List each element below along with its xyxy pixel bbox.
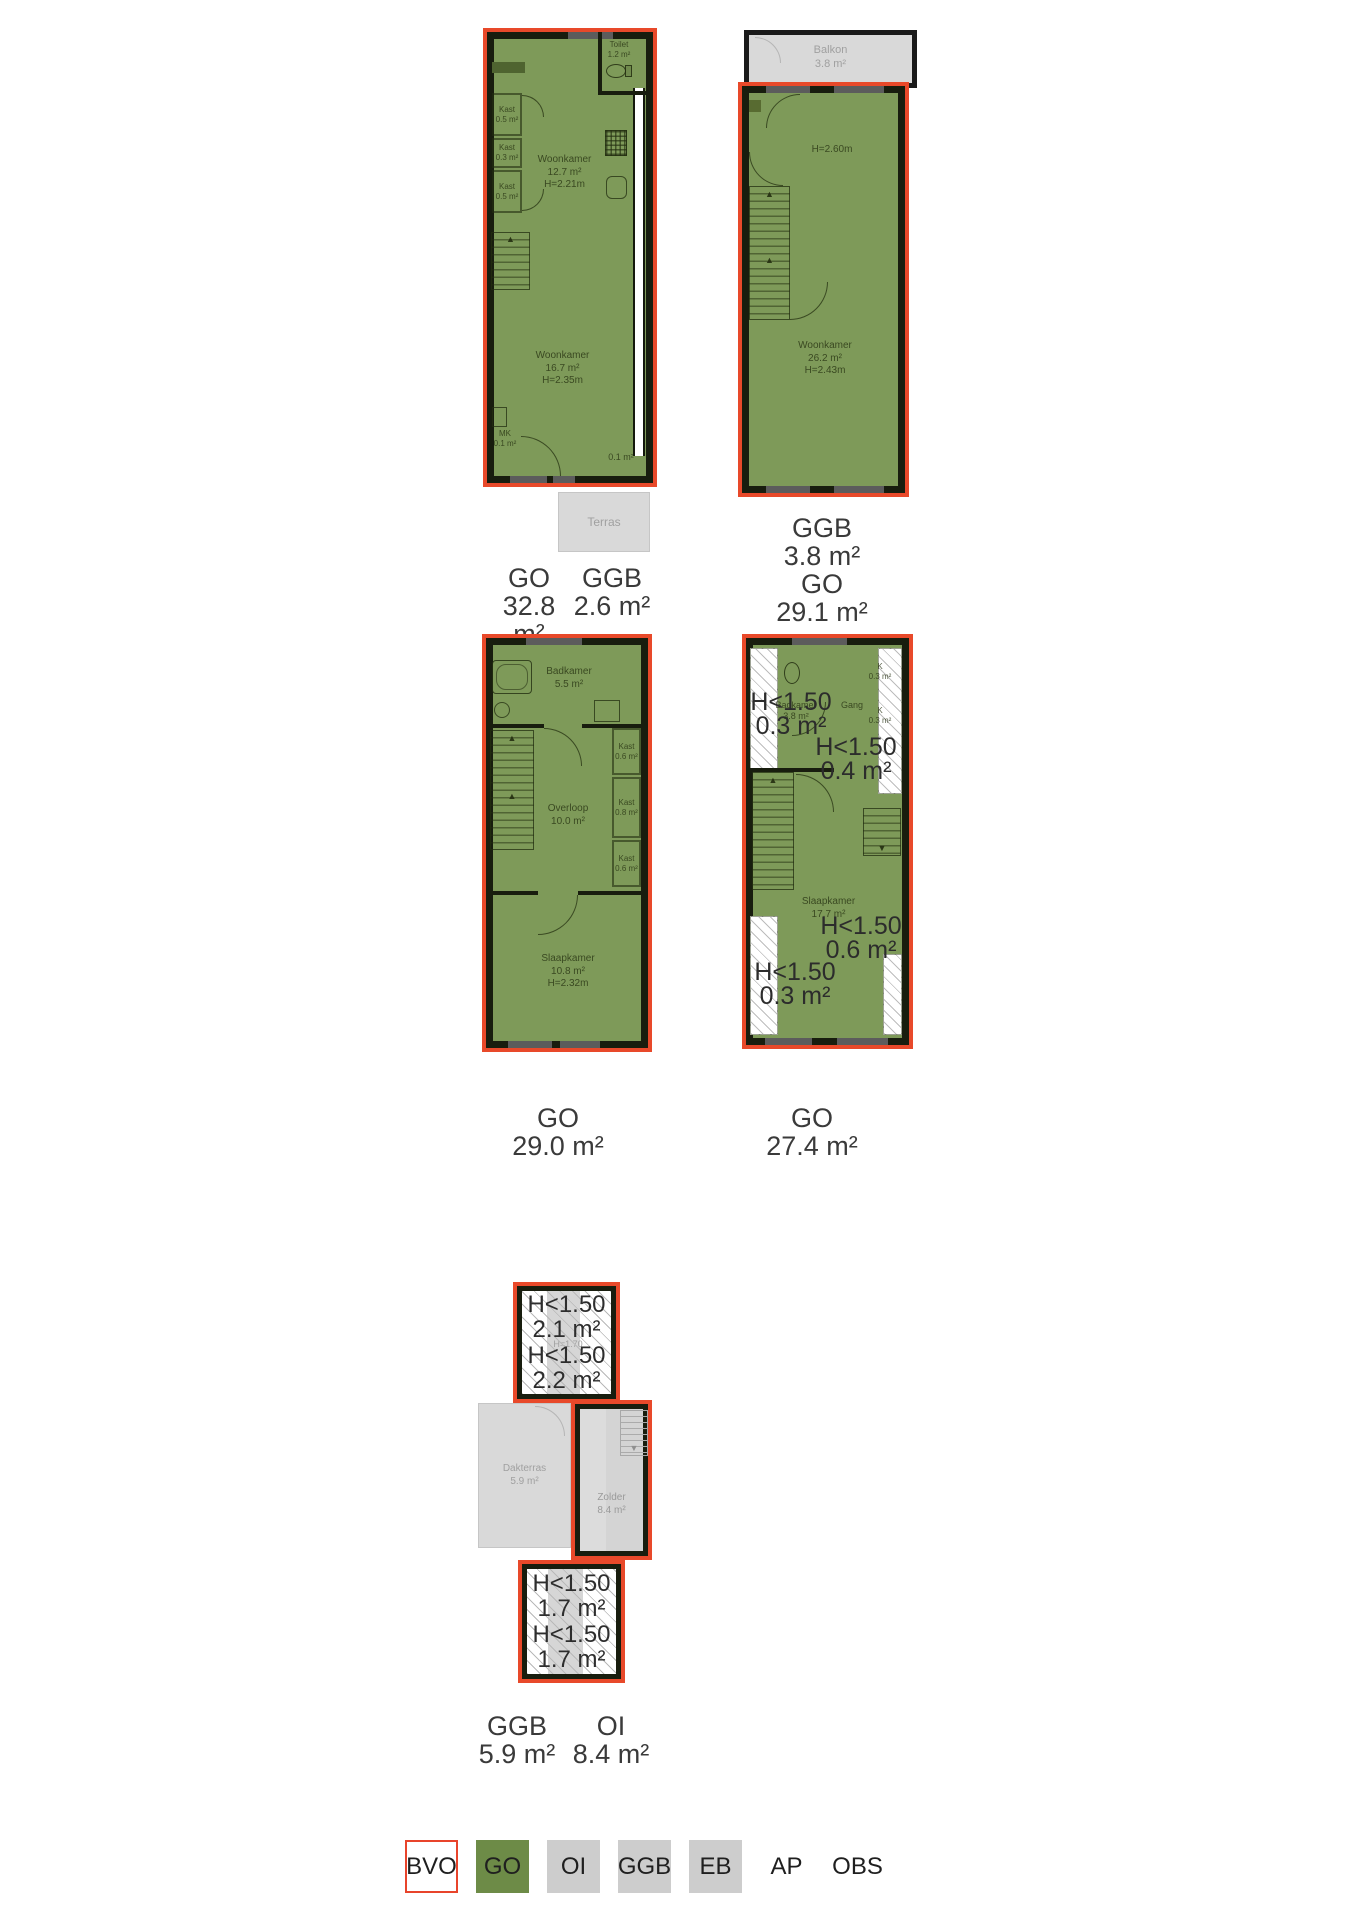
attic-bottom-walls: H<1.50 1.7 m² H<1.50 1.7 m² [522, 1564, 621, 1679]
stairs-up-arrow-icon: ▲ [506, 234, 515, 244]
interior-wall [578, 891, 648, 895]
room-label-kast2: Kast 0.3 m² [496, 143, 519, 163]
room-label-woonkamer-back: Woonkamer 16.7 m² H=2.35m [515, 350, 610, 388]
room-name: Overloop [528, 803, 608, 816]
low-height-labels: H<1.50 1.7 m² H<1.50 1.7 m² [527, 1569, 616, 1674]
counter [492, 62, 525, 73]
room-height: H=2.21m [517, 179, 612, 192]
zone-area: 0.4 m² [810, 759, 902, 783]
zone-area: 2.2 m² [532, 1368, 600, 1394]
measurement-oi: OI 8.4 m² [567, 1712, 655, 1768]
legend-item-ggb: GGB [618, 1840, 671, 1893]
room-name: Toilet [597, 40, 641, 50]
measurement-go: GO 29.0 m² [508, 1104, 608, 1160]
staircase-upper: ▼ [863, 808, 901, 856]
room-area: 16.7 m² [515, 363, 610, 376]
plan-attic-zolder-section: ▼ Zolder 8.4 m² [571, 1400, 652, 1560]
room-label-kast3: Kast 0.6 m² [615, 854, 638, 874]
measurement-code: GGB [572, 564, 652, 592]
toilet-wall [598, 91, 653, 95]
measurement-code: GGB [772, 514, 872, 542]
closet-kast-3: Kast 0.6 m² [612, 840, 641, 887]
low-height-label-4: H<1.50 0.3 m² [752, 960, 838, 1008]
room-area: 3.8 m² [749, 57, 912, 71]
low-height-label-1: H<1.50 0.3 m² [748, 690, 834, 738]
room-label-kast1: Kast 0.5 m² [496, 105, 519, 125]
low-height-hatch [883, 954, 902, 1035]
room-area: 0.5 m² [496, 192, 519, 202]
measurement-ggb: GGB 2.6 m² [572, 564, 652, 620]
measurement-value: 27.4 m² [762, 1132, 862, 1160]
vent-grille-icon [605, 130, 627, 156]
room-name: Dakterras [479, 1462, 570, 1475]
room-area: 0.1 m² [599, 452, 643, 463]
room-label-badkamer: Badkamer 5.5 m² [524, 666, 614, 691]
zone-area: 1.7 m² [537, 1596, 605, 1622]
stairs-up-arrow-icon: ▲ [765, 189, 774, 199]
room-name: Zolder [580, 1491, 643, 1504]
duct [749, 100, 761, 112]
attic-top-walls: H=1.70 H<1.50 2.1 m² H<1.50 2.2 m² [517, 1286, 616, 1399]
staircase: ▼ [620, 1410, 648, 1456]
legend-label: GGB [618, 1853, 671, 1881]
room-label-k1: K 0.3 m² [864, 662, 896, 682]
plan-attic-top-section: H=1.70 H<1.50 2.1 m² H<1.50 2.2 m² [513, 1282, 620, 1403]
legend-item-oi: OI [547, 1840, 600, 1893]
room-name: Kast [496, 143, 519, 153]
room-label-kast2: Kast 0.8 m² [615, 798, 638, 818]
legend-label: GO [484, 1853, 521, 1881]
legend-label: OI [561, 1853, 586, 1881]
sink-icon [494, 702, 510, 718]
measurement-go: GO 27.4 m² [762, 1104, 862, 1160]
window-segment [766, 486, 810, 493]
room-name: K [864, 706, 896, 716]
balkon-area: Balkon 3.8 m² [744, 30, 917, 88]
zone-area: 1.7 m² [537, 1647, 605, 1673]
room-label-overloop: Overloop 10.0 m² [528, 803, 608, 828]
room-name: Kast [496, 105, 519, 115]
low-height-label-2: H<1.50 0.4 m² [810, 735, 902, 783]
room-area: 5.5 m² [524, 679, 614, 692]
room-name: Slaapkamer [518, 953, 618, 966]
room-label-dakterras: Dakterras 5.9 m² [479, 1462, 570, 1488]
stairs-down-arrow-icon: ▼ [630, 1443, 639, 1453]
stairs-up-arrow-icon: ▲ [508, 791, 517, 801]
room-area: 12.7 m² [517, 167, 612, 180]
plan-top-left: Toilet 1.2 m² Kast 0.5 m² Kast 0.3 m² Ka… [483, 28, 657, 487]
measurement-value: 2.6 m² [572, 592, 652, 620]
interior-wall [486, 891, 538, 895]
floorplan-sheet: Toilet 1.2 m² Kast 0.5 m² Kast 0.3 m² Ka… [0, 0, 1358, 1920]
window-segment [766, 86, 810, 93]
room-name: Kast [615, 854, 638, 864]
shaft [633, 88, 645, 456]
door-arc [535, 1406, 565, 1436]
window-segment [834, 86, 884, 93]
zone-area: 0.3 m² [752, 984, 838, 1008]
interior-wall [486, 724, 544, 728]
window-segment [792, 638, 847, 645]
room-label-kast1: Kast 0.6 m² [615, 742, 638, 762]
room-name: Kast [496, 182, 519, 192]
room-name: K [864, 662, 896, 672]
room-area: 0.3 m² [864, 716, 896, 726]
legend-item-bvo: BVO [405, 1840, 458, 1893]
legend-item-go: GO [476, 1840, 529, 1893]
measurement-value: 8.4 m² [567, 1740, 655, 1768]
window-segment [568, 32, 613, 39]
legend-label: EB [699, 1853, 731, 1881]
terras-area: Terras [558, 492, 650, 552]
room-area: 0.3 m² [496, 153, 519, 163]
measurement-value: 29.0 m² [508, 1132, 608, 1160]
room-label-balkon: Balkon 3.8 m² [749, 43, 912, 72]
stairs-up-arrow-icon: ▲ [765, 255, 774, 265]
measurement-code: GGB [471, 1712, 563, 1740]
zone-label: H<1.50 [532, 1571, 610, 1597]
plan-mid-left: Badkamer 5.5 m² Kast 0.6 m² Kast 0.8 m² … [482, 634, 652, 1052]
washbasin-icon [594, 700, 620, 722]
room-name: Slaapkamer [781, 896, 876, 909]
window-segment [553, 476, 575, 483]
room-label-k2: K 0.3 m² [864, 706, 896, 726]
room-height: H=2.35m [515, 375, 610, 388]
window-segment [510, 476, 547, 483]
measurement-code: GO [772, 570, 872, 598]
room-label-zolder: Zolder 8.4 m² [580, 1491, 643, 1517]
mk-cabinet-icon [492, 407, 507, 427]
measurement-ggb-go: GGB 3.8 m² GO 29.1 m² [772, 514, 872, 626]
legend-label: OBS [832, 1853, 883, 1881]
room-area: 8.4 m² [580, 1504, 643, 1517]
window-segment [508, 1041, 552, 1048]
room-area: 0.1 m² [488, 439, 522, 449]
legend-item-ap: AP [760, 1840, 813, 1893]
plan-top-right: H=2.60m ▲ ▲ Woonkamer 26.2 m² H=2.43m [738, 82, 909, 497]
room-height: H=2.32m [518, 978, 618, 991]
legend-label: BVO [406, 1853, 457, 1881]
closet-kast-1: Kast 0.6 m² [612, 728, 641, 775]
zone-label: H<1.50 [527, 1343, 605, 1369]
measurement-value: 29.1 m² [772, 598, 872, 626]
dakterras-area: Dakterras 5.9 m² [478, 1403, 571, 1548]
low-height-labels: H<1.50 2.1 m² H<1.50 2.2 m² [522, 1291, 611, 1394]
legend-label: AP [770, 1853, 802, 1881]
staircase: ▲ [752, 772, 794, 890]
room-name: Badkamer [524, 666, 614, 679]
zolder-walls: ▼ Zolder 8.4 m² [575, 1404, 648, 1556]
toilet-icon [784, 662, 800, 684]
room-area: 10.8 m² [518, 966, 618, 979]
chimney-strip [580, 1409, 606, 1551]
legend-item-eb: EB [689, 1840, 742, 1893]
stairs-up-arrow-icon: ▲ [508, 733, 517, 743]
room-area: 0.3 m² [864, 672, 896, 682]
zone-label: H<1.50 [527, 1292, 605, 1318]
room-label-woonkamer-front: Woonkamer 12.7 m² H=2.21m [517, 154, 612, 192]
room-label-toilet: Toilet 1.2 m² [597, 40, 641, 60]
staircase: ▲ ▲ [749, 186, 790, 320]
staircase: ▲ ▲ [490, 730, 534, 850]
zone-label: H<1.50 [810, 735, 902, 759]
measurement-code: OI [567, 1712, 655, 1740]
plan-mid-right: Badkamer 3.8 m² Gang K 0.3 m² K 0.3 m² ▲… [742, 634, 913, 1049]
window-segment [560, 1041, 600, 1048]
room-label-mk: MK 0.1 m² [488, 429, 522, 449]
plan-attic-bottom-section: H<1.50 1.7 m² H<1.50 1.7 m² [518, 1560, 625, 1683]
closet-kast-1: Kast 0.5 m² [492, 93, 522, 136]
room-label-woonkamer: Woonkamer 26.2 m² H=2.43m [775, 340, 875, 378]
measurement-ggb: GGB 5.9 m² [471, 1712, 563, 1768]
toilet-icon [606, 64, 626, 78]
low-height-label-3: H<1.50 0.6 m² [816, 914, 906, 962]
room-height: H=2.60m [792, 144, 872, 157]
room-area: 1.2 m² [597, 50, 641, 60]
room-name: MK [488, 429, 522, 439]
stairs-down-arrow-icon: ▼ [878, 843, 887, 853]
room-area: 5.9 m² [479, 1475, 570, 1488]
room-height: H=2.43m [775, 365, 875, 378]
room-name: Balkon [749, 43, 912, 57]
room-area: 0.8 m² [615, 808, 638, 818]
toilet-tank-icon [625, 65, 632, 77]
measurement-code: GO [508, 1104, 608, 1132]
zone-label: H<1.50 [532, 1622, 610, 1648]
window-segment [834, 486, 884, 493]
room-area: 0.6 m² [615, 864, 638, 874]
height-note: H=2.60m [792, 144, 872, 157]
measurement-code: GO [762, 1104, 862, 1132]
room-label-terras: Terras [559, 515, 649, 531]
window-segment [526, 638, 582, 645]
room-label-niche: 0.1 m² [599, 452, 643, 463]
staircase: ▲ [491, 232, 530, 290]
legend-item-obs: OBS [831, 1840, 884, 1893]
room-area: 10.0 m² [528, 816, 608, 829]
stairs-up-arrow-icon: ▲ [769, 775, 778, 785]
zone-label: H<1.50 [752, 960, 838, 984]
zone-area: 2.1 m² [532, 1317, 600, 1343]
room-name: Kast [615, 742, 638, 752]
measurement-value: 5.9 m² [471, 1740, 563, 1768]
measurement-code: GO [489, 564, 569, 592]
room-name: Kast [615, 798, 638, 808]
room-area: 0.5 m² [496, 115, 519, 125]
closet-kast-2: Kast 0.8 m² [612, 777, 641, 838]
room-name: Woonkamer [515, 350, 610, 363]
zone-label: H<1.50 [816, 914, 906, 938]
window-segment [837, 1038, 888, 1045]
room-area: 0.6 m² [615, 752, 638, 762]
room-name: Woonkamer [775, 340, 875, 353]
room-name: Woonkamer [517, 154, 612, 167]
measurement-value: 3.8 m² [772, 542, 872, 570]
legend: BVO GO OI GGB EB AP OBS [405, 1840, 884, 1893]
window-segment [765, 1038, 812, 1045]
zone-label: H<1.50 [748, 690, 834, 714]
room-label-slaapkamer: Slaapkamer 10.8 m² H=2.32m [518, 953, 618, 991]
room-label-kast3: Kast 0.5 m² [496, 182, 519, 202]
room-area: 26.2 m² [775, 353, 875, 366]
